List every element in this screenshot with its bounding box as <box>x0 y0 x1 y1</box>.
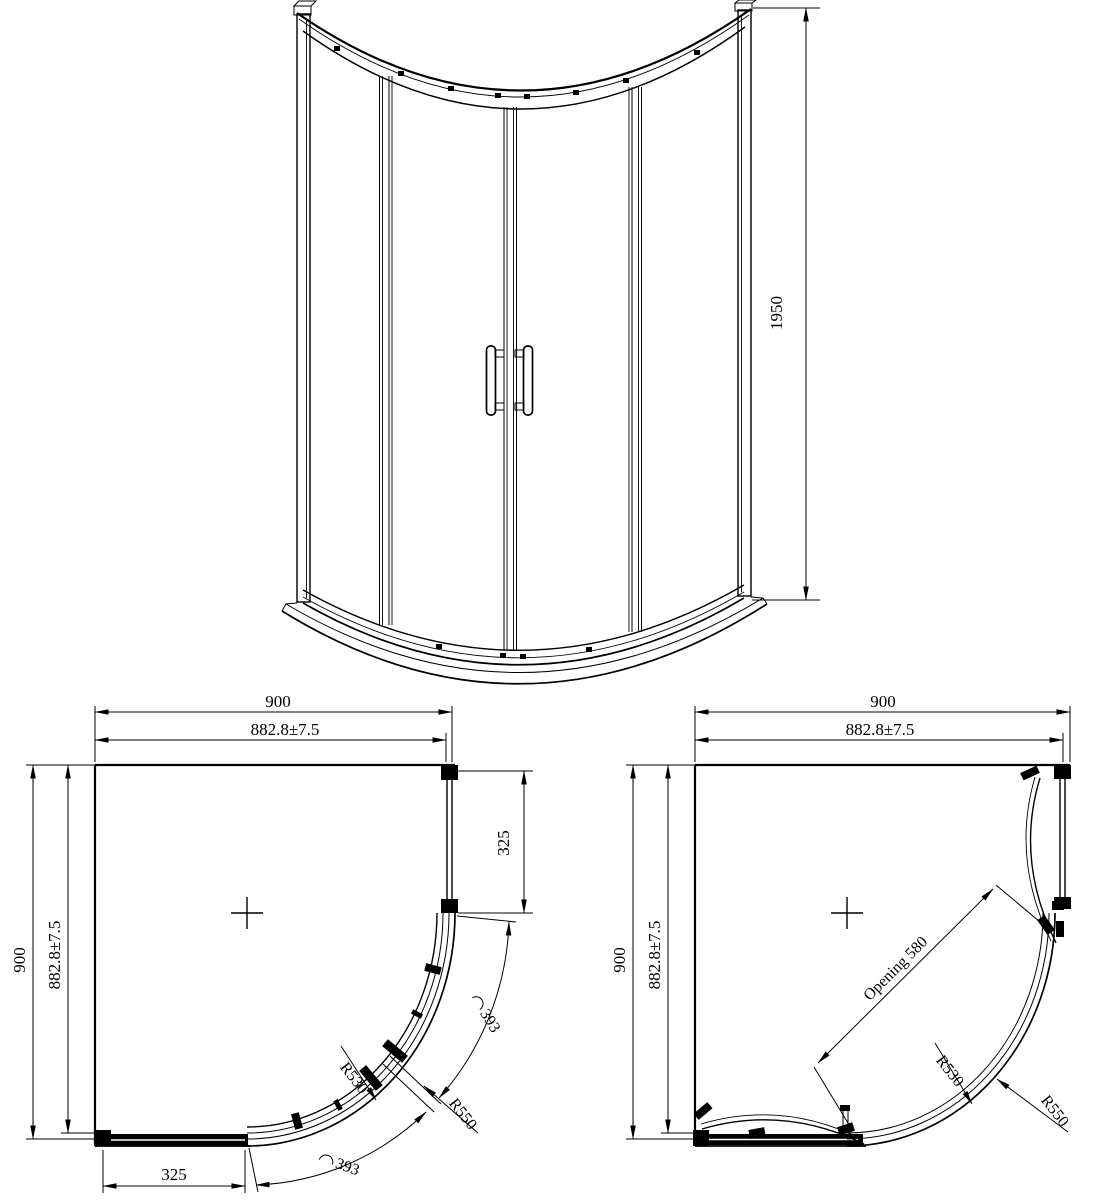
plan-closed-height-tol-label: 882.8±7.5 <box>45 921 64 990</box>
sliding-door-stiles <box>380 76 642 650</box>
plan-closed-fixed-panel-bottom <box>94 1130 248 1146</box>
plan-open-parked-door-top <box>1020 766 1064 943</box>
front-elevation-view: 1950 <box>282 0 820 684</box>
plan-closed-side-panel-label: 325 <box>494 830 513 856</box>
plan-open-center-cross <box>831 897 863 929</box>
plan-closed-fixed-panel-side <box>441 765 458 913</box>
plan-closed-height-label: 900 <box>10 947 29 973</box>
plan-open-width-tol-label: 882.8±7.5 <box>846 720 915 739</box>
plan-closed-width-tol-label: 882.8±7.5 <box>251 720 320 739</box>
plan-view-doors-closed: 900 882.8±7.5 900 882.8±7.5 325 <box>10 692 533 1193</box>
elevation-height-dimension: 1950 <box>752 8 820 600</box>
arc-length-symbol <box>319 1153 335 1164</box>
plan-closed-center-cross <box>231 897 263 929</box>
plan-open-height-label: 900 <box>610 947 629 973</box>
plan-closed-width-label: 900 <box>265 692 291 711</box>
shower-enclosure-technical-drawing: 1950 <box>0 0 1118 1200</box>
arc-length-symbol <box>472 994 485 1010</box>
plan-open-door-arcs <box>847 913 1055 1146</box>
plan-open-width-label: 900 <box>870 692 896 711</box>
plan-open-r530-dimension: R530 <box>932 1043 972 1104</box>
plan-closed-door-arcs <box>247 913 455 1146</box>
plan-closed-arc-bottom-label: 393 <box>333 1155 361 1179</box>
plan-closed-arc-bottom-dimension: 393 <box>249 1064 434 1192</box>
plan-closed-bottom-panel-label: 325 <box>161 1165 187 1184</box>
plan-open-height-tol-label: 882.8±7.5 <box>645 921 664 990</box>
plan-open-r550-dimension: R550 <box>997 1079 1072 1132</box>
drawing-sheet: 1950 <box>0 0 1118 1200</box>
plan-view-doors-open: 900 882.8±7.5 900 882.8±7.5 Opening 580 <box>610 692 1072 1146</box>
right-door-handle <box>515 346 533 415</box>
plan-open-width-tol-dimension: 882.8±7.5 <box>695 720 1063 762</box>
left-door-handle <box>487 346 505 415</box>
plan-open-height-tol-dimension: 882.8±7.5 <box>645 765 698 1133</box>
plan-open-walls <box>695 765 1070 1146</box>
plan-open-fixed-panel-side <box>1054 765 1071 909</box>
plan-closed-r550-dimension: R550 <box>424 1086 480 1133</box>
plan-open-r550-label: R550 <box>1037 1092 1072 1130</box>
elevation-height-label: 1950 <box>767 296 786 330</box>
left-wall-profile <box>294 1 316 602</box>
plan-closed-r550-label: R550 <box>445 1095 480 1133</box>
plan-closed-width-tol-dimension: 882.8±7.5 <box>95 720 446 762</box>
plan-open-opening-dimension: Opening 580 <box>814 885 1046 1128</box>
plan-closed-height-tol-dimension: 882.8±7.5 <box>45 765 98 1133</box>
plan-closed-bottom-panel-dimension: 325 <box>103 1150 245 1193</box>
plan-closed-side-panel-dimension: 325 <box>458 771 533 913</box>
plan-closed-arc-top-label: 393 <box>476 1006 503 1035</box>
bottom-curved-rail <box>303 585 744 665</box>
door-handles <box>487 346 533 415</box>
plan-open-r530-label: R530 <box>932 1052 967 1090</box>
plan-closed-walls <box>95 765 455 1146</box>
plan-open-opening-label: Opening 580 <box>860 933 931 1004</box>
top-curved-rail <box>297 9 751 109</box>
right-wall-profile <box>735 0 756 596</box>
